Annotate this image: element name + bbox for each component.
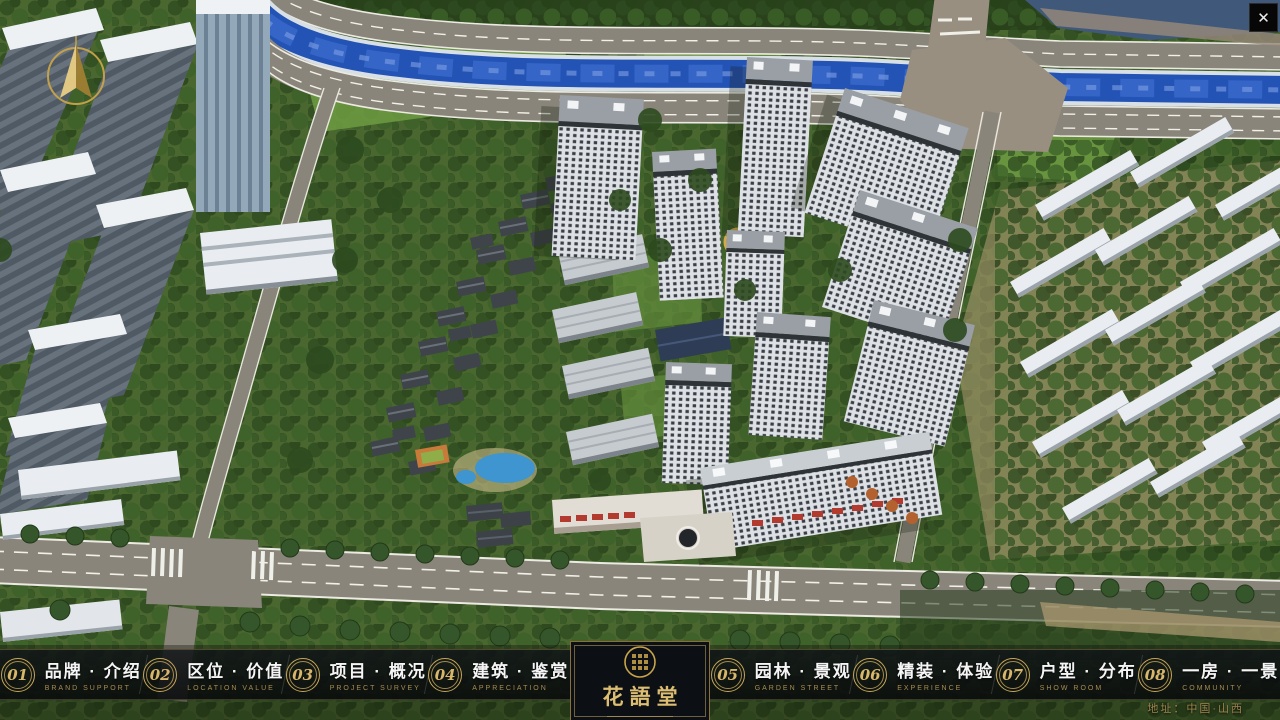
nav-item-project-overview[interactable]: 03 项目 · 概况 PROJECT SURVEY	[285, 650, 428, 699]
seal-icon	[623, 645, 657, 679]
bottom-navbar: 01 品牌 · 介绍 BRAND SUPPORT 02 区位 · 价值 LOCA…	[0, 649, 1280, 700]
scene-viewport[interactable]	[0, 0, 1280, 720]
nav-item-label: 园林 · 景观	[755, 657, 852, 682]
nav-item-sublabel: SHOW ROOM	[1040, 685, 1104, 692]
nav-item-label: 建筑 · 鉴赏	[472, 657, 569, 682]
item-number: 01	[7, 666, 28, 684]
nav-item-sublabel: COMMUNITY	[1182, 685, 1243, 692]
nav-item-label: 项目 · 概况	[330, 657, 427, 682]
nav-item-text: 建筑 · 鉴赏 APPRECIATION	[472, 657, 569, 692]
item-number-badge: 05	[711, 658, 745, 692]
item-number: 02	[150, 666, 171, 684]
logo-name: 花語堂	[597, 681, 684, 711]
nav-item-text: 一房 · 一景 COMMUNITY	[1182, 657, 1279, 692]
nav-item-sublabel: LOCATION VALUE	[187, 685, 275, 692]
compass-icon	[40, 34, 112, 108]
nav-item-sublabel: PROJECT SURVEY	[330, 685, 421, 692]
project-logo[interactable]: 花語堂	[570, 641, 710, 720]
item-number: 03	[292, 666, 313, 684]
nav-item-text: 项目 · 概况 PROJECT SURVEY	[330, 657, 427, 692]
nav-item-label: 品牌 · 介绍	[45, 657, 142, 682]
nav-item-text: 精装 · 体验 EXPERIENCE	[897, 657, 994, 692]
item-number: 05	[717, 666, 738, 684]
item-number-badge: 01	[1, 658, 35, 692]
nav-item-sublabel: APPRECIATION	[472, 685, 548, 692]
item-number: 07	[1002, 666, 1023, 684]
item-number: 04	[435, 666, 456, 684]
project-address: 地址：中国·山西	[1147, 700, 1244, 716]
item-number-badge: 07	[996, 658, 1030, 692]
logo-divider	[607, 716, 673, 717]
item-number: 08	[1145, 666, 1166, 684]
nav-item-location-value[interactable]: 02 区位 · 价值 LOCATION VALUE	[143, 650, 286, 699]
item-number-badge: 06	[853, 658, 887, 692]
presentation-window: ✕ 01 品牌 · 介绍 BRAND SUPPORT 02 区位 · 价值 LO…	[0, 0, 1280, 720]
nav-item-label: 精装 · 体验	[897, 657, 994, 682]
nav-item-room-view[interactable]: 08 一房 · 一景 COMMUNITY	[1138, 650, 1280, 699]
nav-item-interior-experience[interactable]: 06 精装 · 体验 EXPERIENCE	[853, 650, 996, 699]
item-number: 06	[860, 666, 881, 684]
nav-item-text: 品牌 · 介绍 BRAND SUPPORT	[45, 657, 142, 692]
nav-item-text: 户型 · 分布 SHOW ROOM	[1040, 657, 1137, 692]
item-number-badge: 02	[143, 658, 177, 692]
nav-item-floorplan-distribution[interactable]: 07 户型 · 分布 SHOW ROOM	[995, 650, 1138, 699]
close-button[interactable]: ✕	[1249, 3, 1278, 32]
nav-item-label: 户型 · 分布	[1040, 657, 1137, 682]
navbar-left-group: 01 品牌 · 介绍 BRAND SUPPORT 02 区位 · 价值 LOCA…	[0, 650, 570, 699]
nav-item-label: 一房 · 一景	[1182, 657, 1279, 682]
nav-item-sublabel: GARDEN STREET	[755, 685, 841, 692]
nav-item-text: 园林 · 景观 GARDEN STREET	[755, 657, 852, 692]
nav-item-label: 区位 · 价值	[187, 657, 284, 682]
item-number-badge: 04	[428, 658, 462, 692]
nav-item-sublabel: EXPERIENCE	[897, 685, 962, 692]
nav-item-text: 区位 · 价值 LOCATION VALUE	[187, 657, 284, 692]
nav-item-brand-intro[interactable]: 01 品牌 · 介绍 BRAND SUPPORT	[0, 650, 143, 699]
nav-item-garden-landscape[interactable]: 05 园林 · 景观 GARDEN STREET	[710, 650, 853, 699]
item-number-badge: 08	[1138, 658, 1172, 692]
nav-item-sublabel: BRAND SUPPORT	[45, 685, 131, 692]
navbar-right-group: 05 园林 · 景观 GARDEN STREET 06 精装 · 体验 EXPE…	[710, 650, 1280, 699]
nav-item-architecture[interactable]: 04 建筑 · 鉴赏 APPRECIATION	[428, 650, 571, 699]
close-icon: ✕	[1257, 9, 1270, 27]
item-number-badge: 03	[286, 658, 320, 692]
